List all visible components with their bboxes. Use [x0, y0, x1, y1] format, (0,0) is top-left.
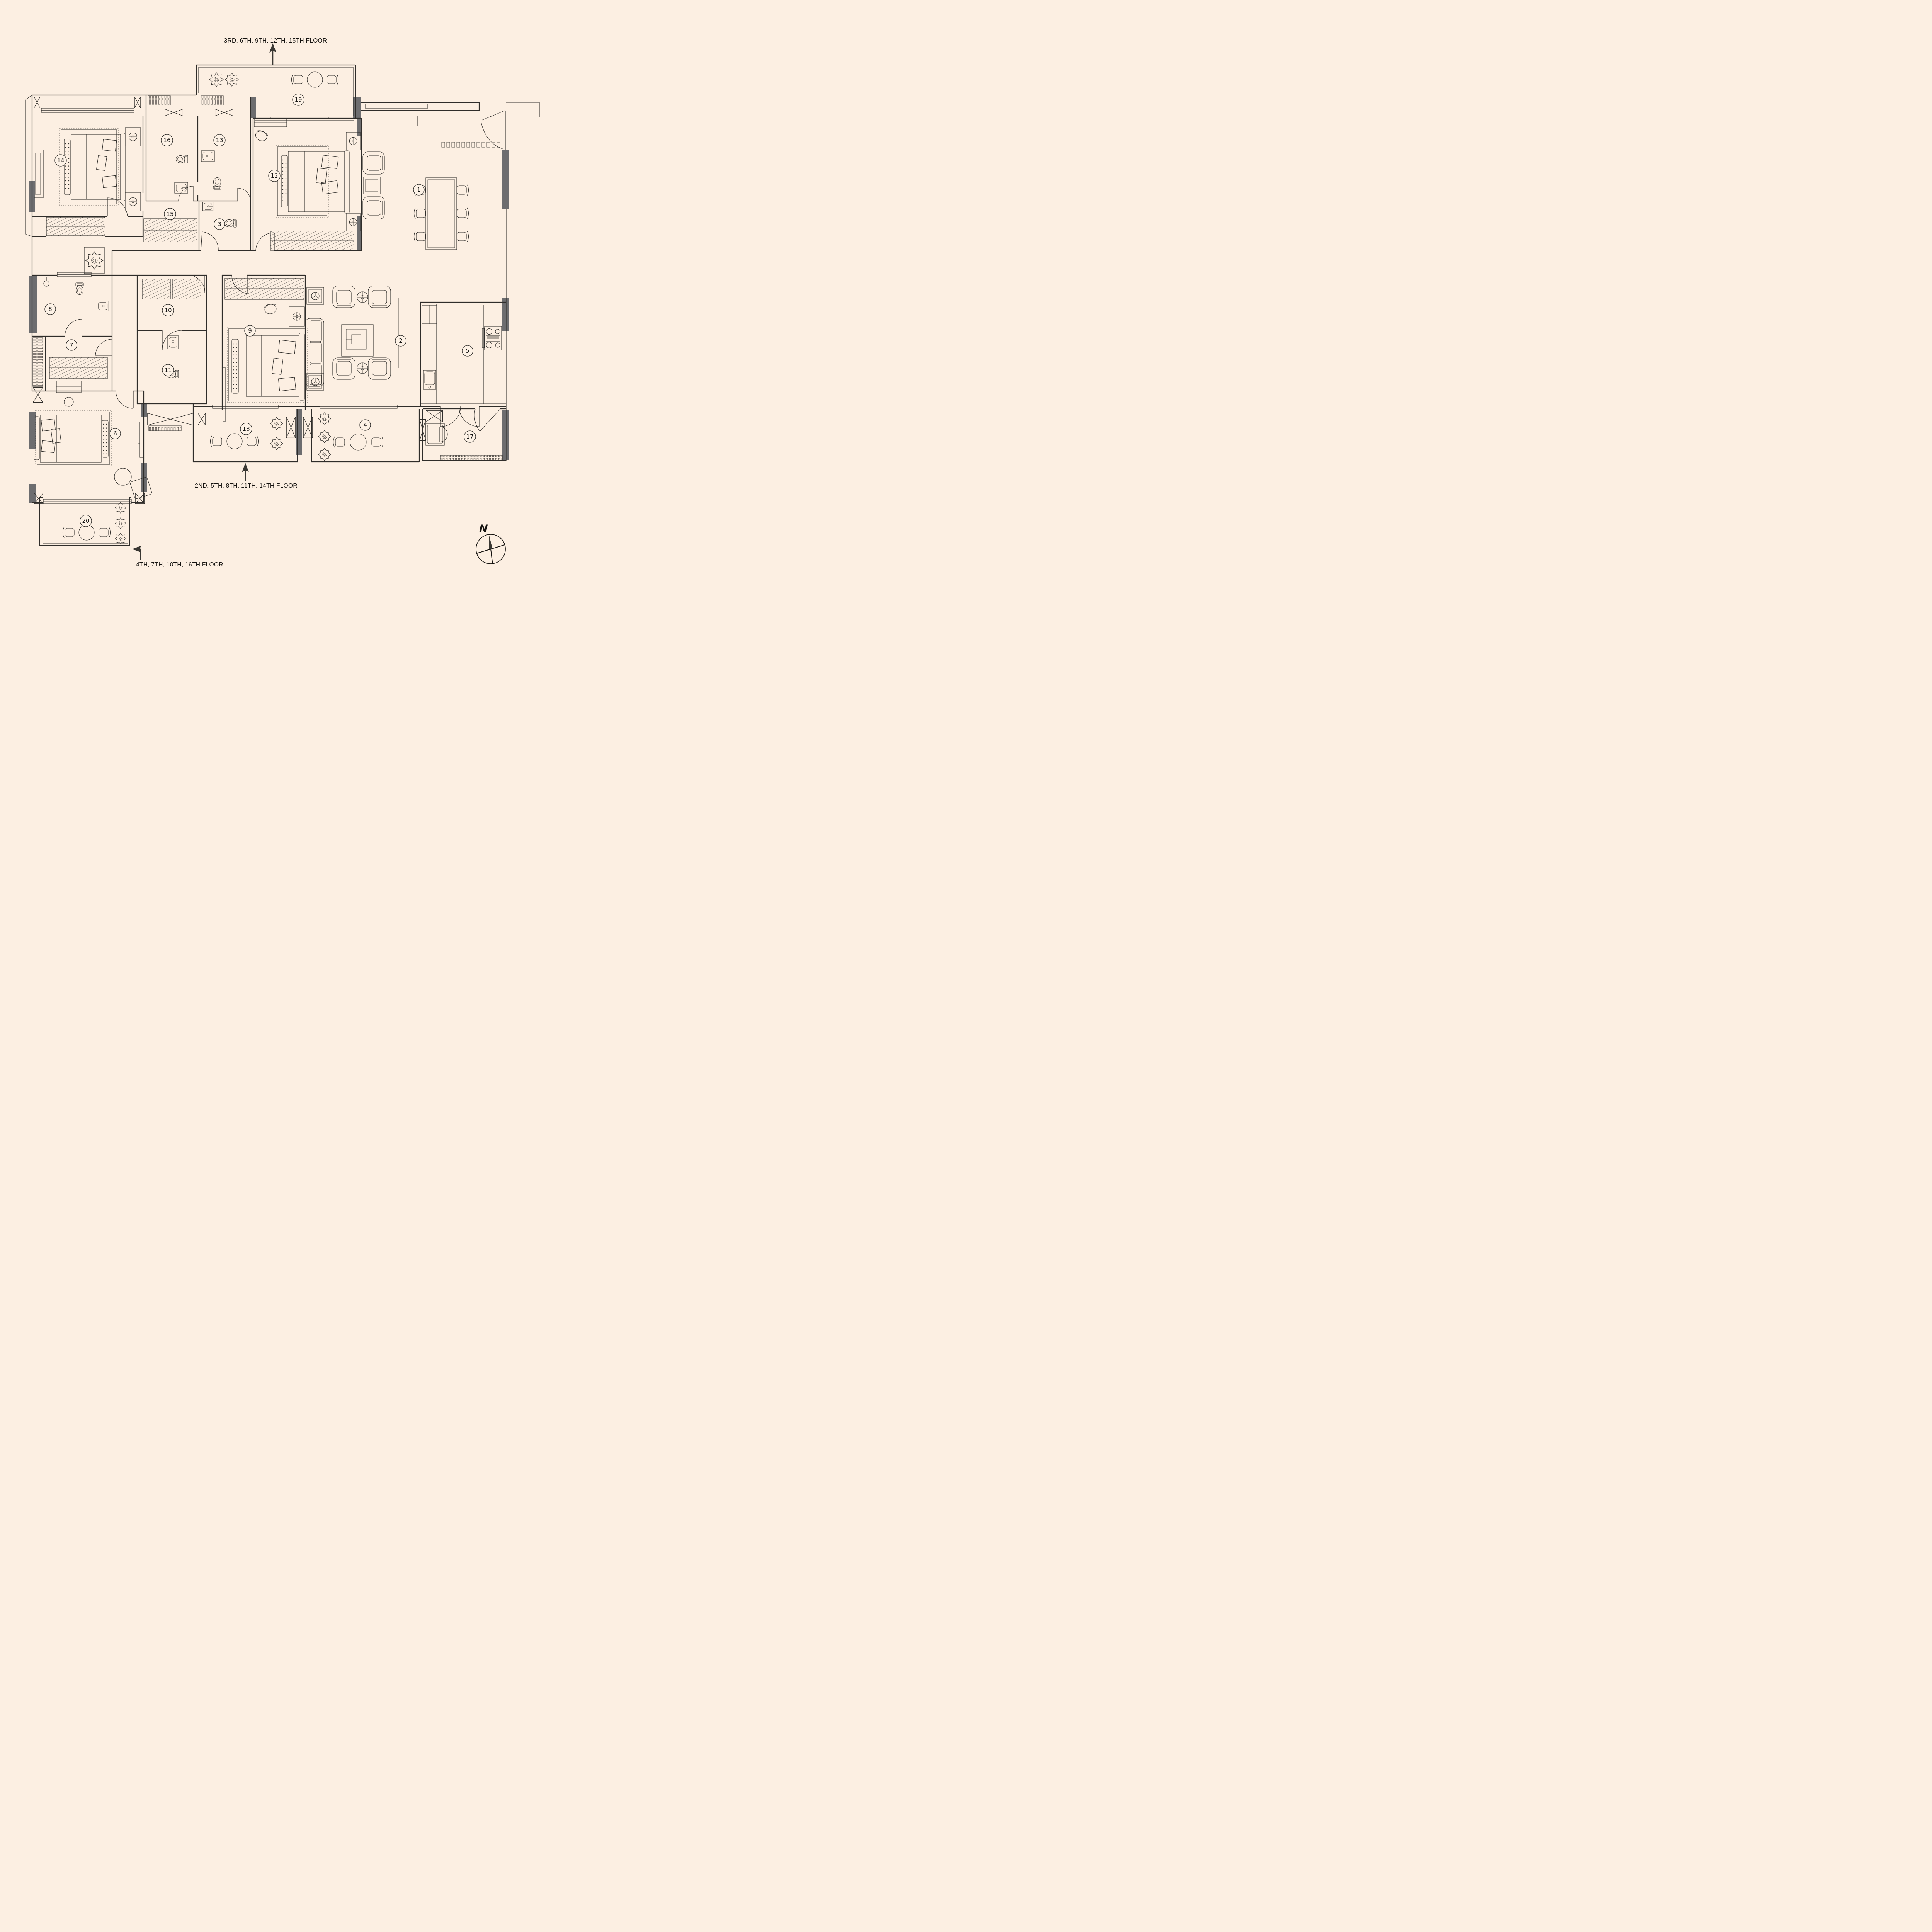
room-marker-13: 13 [214, 134, 225, 146]
room-9-bedroom [223, 303, 308, 421]
svg-text:3: 3 [218, 221, 221, 228]
room-5-kitchen [422, 305, 502, 389]
walls [26, 65, 539, 546]
floor-label-bottom: 4TH, 7TH, 10TH, 16TH FLOOR [136, 561, 223, 568]
floor-plan-page: 1 2 3 4 5 6 7 8 9 10 11 12 13 14 15 16 1… [0, 0, 543, 606]
room-marker-12: 12 [269, 170, 280, 182]
compass-north-label: N [479, 523, 488, 535]
svg-text:16: 16 [163, 137, 170, 144]
floor-label-top-group: 3RD, 6TH, 9TH, 12TH, 15TH FLOOR [224, 37, 327, 65]
doors [65, 111, 505, 431]
svg-text:19: 19 [294, 96, 302, 103]
room-marker-5: 5 [462, 345, 473, 356]
room-marker-15: 15 [164, 208, 176, 220]
svg-text:18: 18 [242, 425, 250, 432]
floor-label-top: 3RD, 6TH, 9TH, 12TH, 15TH FLOOR [224, 37, 327, 44]
structural-columns [29, 97, 509, 503]
svg-text:17: 17 [466, 433, 473, 440]
room-1-dining [363, 116, 469, 250]
room-marker-10: 10 [162, 304, 174, 316]
svg-text:4: 4 [363, 422, 367, 429]
svg-text:15: 15 [166, 211, 173, 218]
room-marker-14: 14 [55, 155, 66, 166]
svg-text:6: 6 [113, 430, 117, 437]
floor-plan-drawing: 1 2 3 4 5 6 7 8 9 10 11 12 13 14 15 16 1… [0, 0, 543, 606]
room-marker-20: 20 [80, 515, 92, 527]
room-marker-19: 19 [293, 94, 304, 105]
room-marker-18: 18 [240, 423, 252, 435]
arrow-up-icon [269, 43, 276, 53]
svg-text:13: 13 [216, 137, 223, 144]
room-17-utility [426, 423, 447, 445]
svg-text:11: 11 [164, 367, 172, 374]
room-marker-6: 6 [110, 428, 121, 439]
svg-text:9: 9 [248, 327, 252, 334]
svg-text:12: 12 [270, 172, 278, 179]
room-6-bedroom [34, 410, 152, 499]
room-20-balcony [63, 502, 126, 544]
room-4-balcony [318, 413, 383, 461]
room-marker-4: 4 [360, 420, 371, 430]
room-marker-3: 3 [214, 219, 225, 230]
room-marker-8: 8 [45, 304, 56, 315]
room-marker-2: 2 [395, 335, 406, 346]
room-7-dressing [56, 381, 81, 406]
arrow-left-icon [132, 546, 141, 553]
room-13-bath [201, 151, 221, 189]
room-marker-9: 9 [245, 325, 255, 336]
svg-text:7: 7 [70, 342, 73, 349]
svg-text:8: 8 [48, 306, 52, 313]
room-2-living [305, 286, 399, 390]
floor-label-middle: 2ND, 5TH, 8TH, 11TH, 14TH FLOOR [195, 483, 298, 489]
svg-text:20: 20 [82, 517, 89, 524]
svg-text:2: 2 [399, 337, 403, 344]
room-16-bath [175, 155, 188, 193]
room-19-balcony [209, 72, 338, 87]
svg-text:5: 5 [466, 347, 469, 354]
arrow-up-icon [242, 463, 249, 472]
floor-label-bottom-group: 4TH, 7TH, 10TH, 16TH FLOOR [132, 546, 223, 568]
room-marker-17: 17 [464, 431, 476, 442]
room-marker-1: 1 [413, 184, 424, 195]
room-marker-16: 16 [161, 134, 173, 146]
svg-text:14: 14 [57, 157, 64, 164]
floor-label-middle-group: 2ND, 5TH, 8TH, 11TH, 14TH FLOOR [195, 463, 298, 489]
svg-text:10: 10 [164, 307, 172, 314]
entry-screen [442, 142, 500, 147]
room-14-bedroom [34, 128, 141, 211]
corridor-planter [84, 247, 104, 274]
compass-rose: N [476, 523, 505, 564]
room-marker-11: 11 [162, 364, 174, 376]
svg-text:1: 1 [417, 186, 421, 193]
room-marker-7: 7 [66, 340, 77, 350]
